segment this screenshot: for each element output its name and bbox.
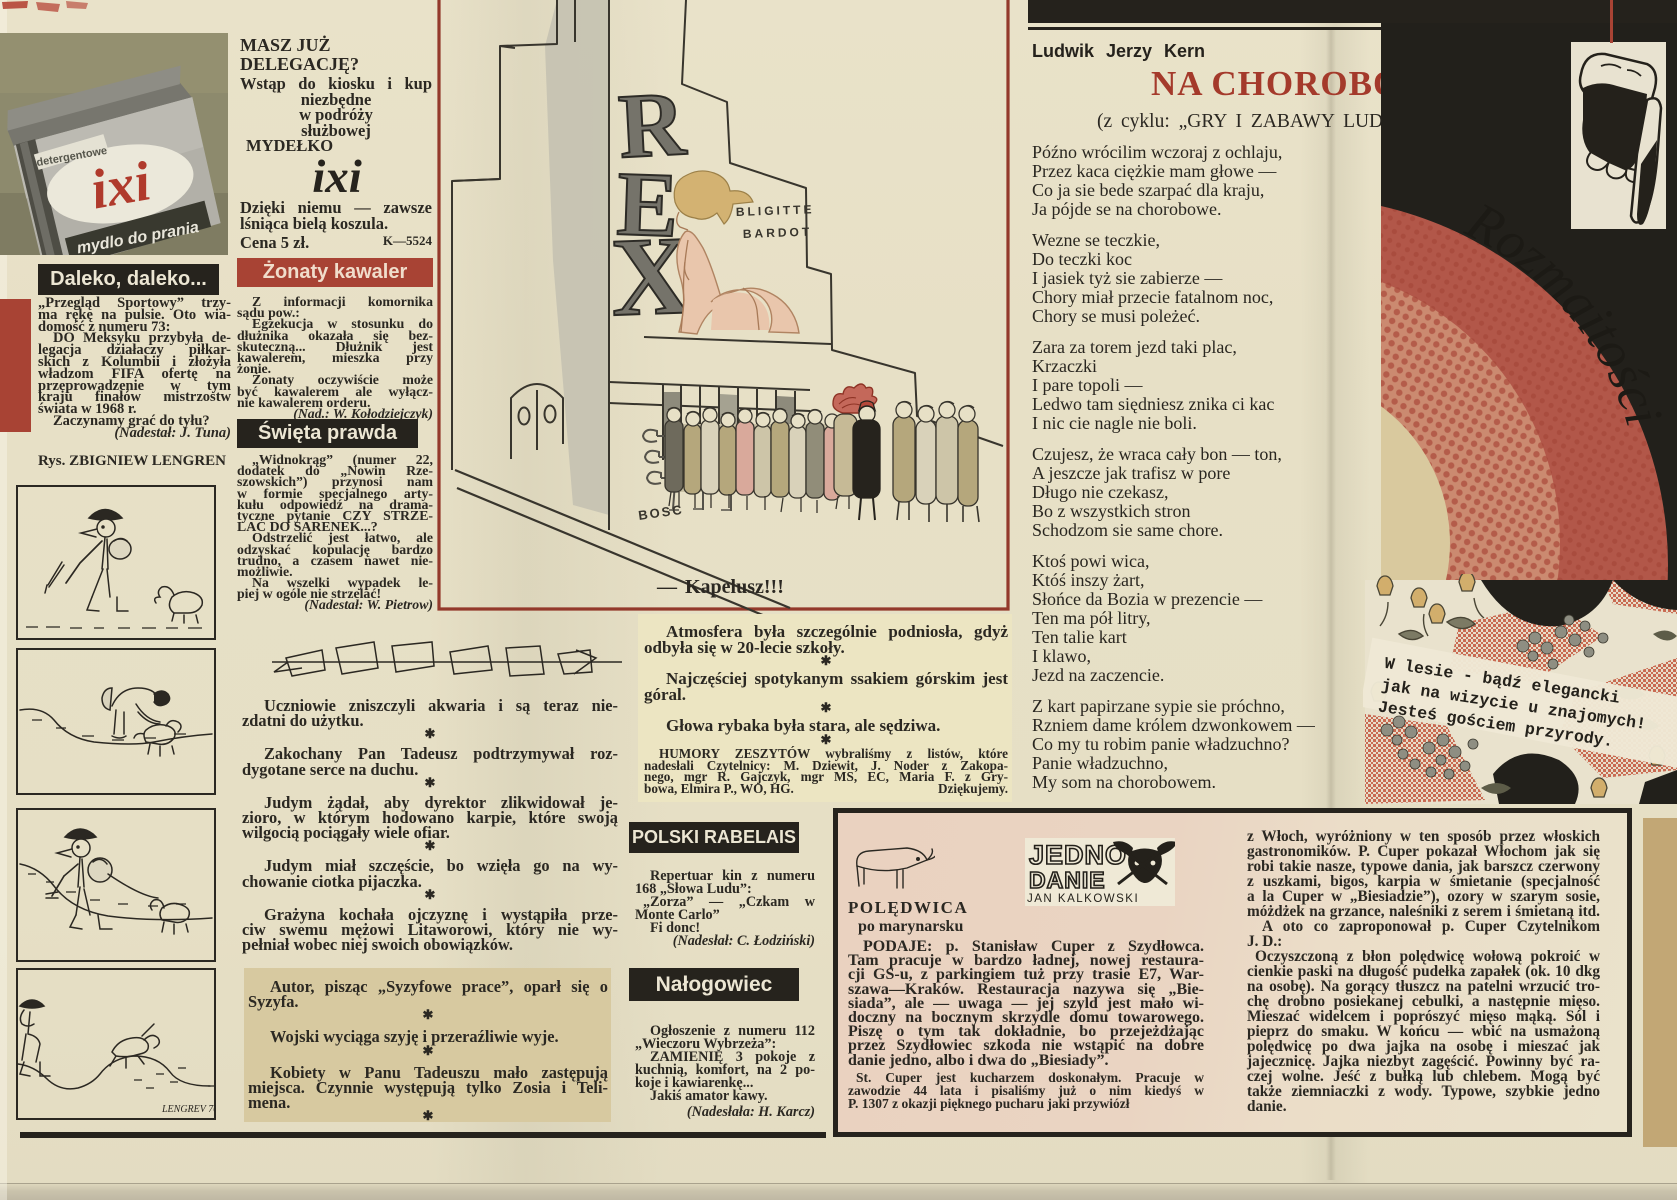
- svg-text:JAN KALKOWSKI: JAN KALKOWSKI: [1027, 893, 1139, 905]
- svg-text:JEDNO: JEDNO: [1029, 840, 1127, 870]
- svg-text:DANIE: DANIE: [1029, 867, 1106, 893]
- svg-text:BOSC: BOSC: [637, 502, 684, 523]
- svg-text:LENGREV 70: LENGREV 70: [161, 1104, 216, 1115]
- svg-text:BARDOT: BARDOT: [743, 225, 813, 241]
- svg-text:BLIGITTE: BLIGITTE: [736, 202, 815, 219]
- svg-text:— Kapelusz!!!: — Kapelusz!!!: [656, 576, 784, 598]
- svg-text:ixi: ixi: [86, 150, 155, 221]
